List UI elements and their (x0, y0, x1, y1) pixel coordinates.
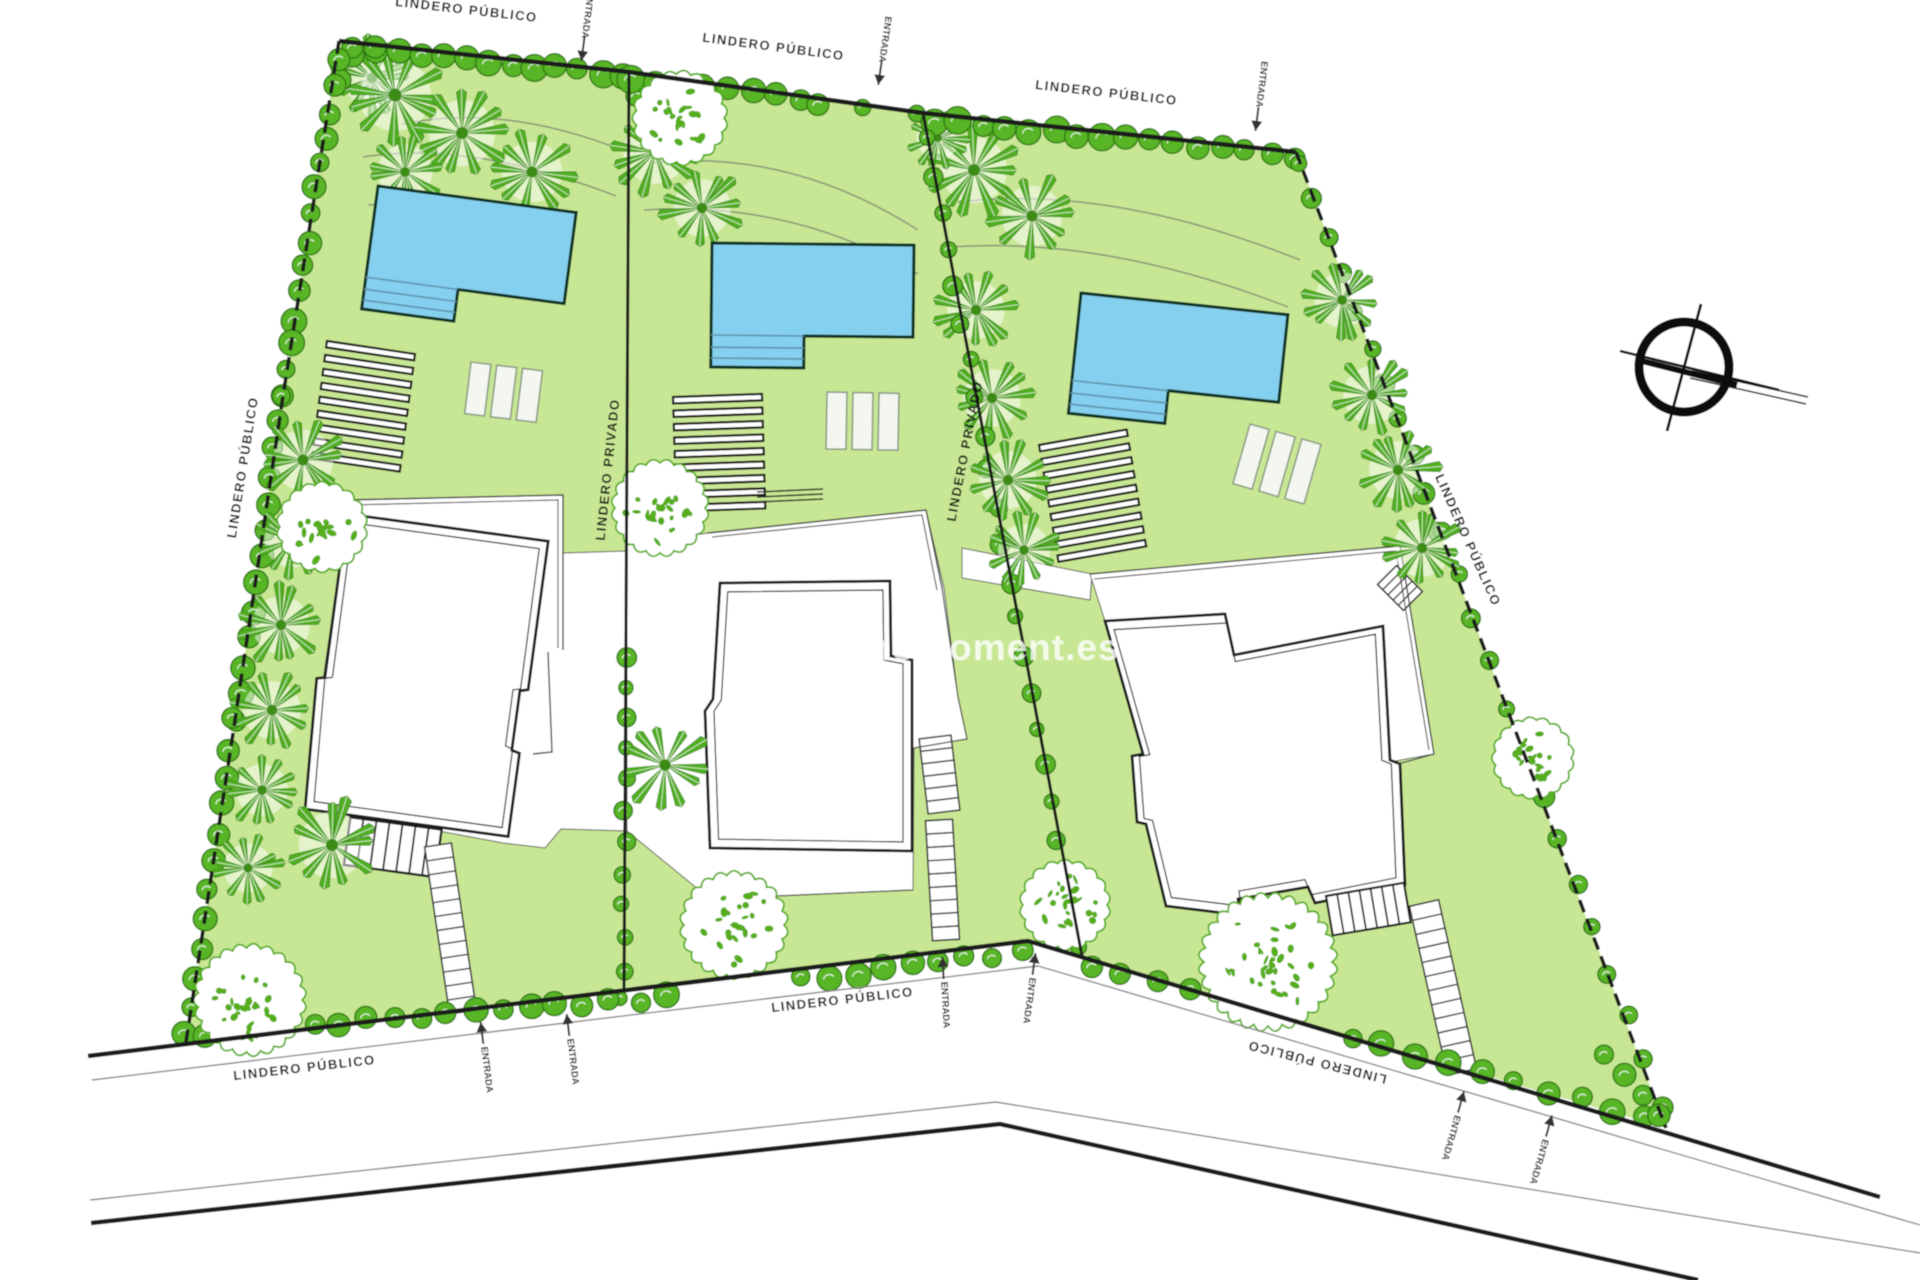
svg-text:nomoment.es: nomoment.es (868, 627, 1120, 668)
